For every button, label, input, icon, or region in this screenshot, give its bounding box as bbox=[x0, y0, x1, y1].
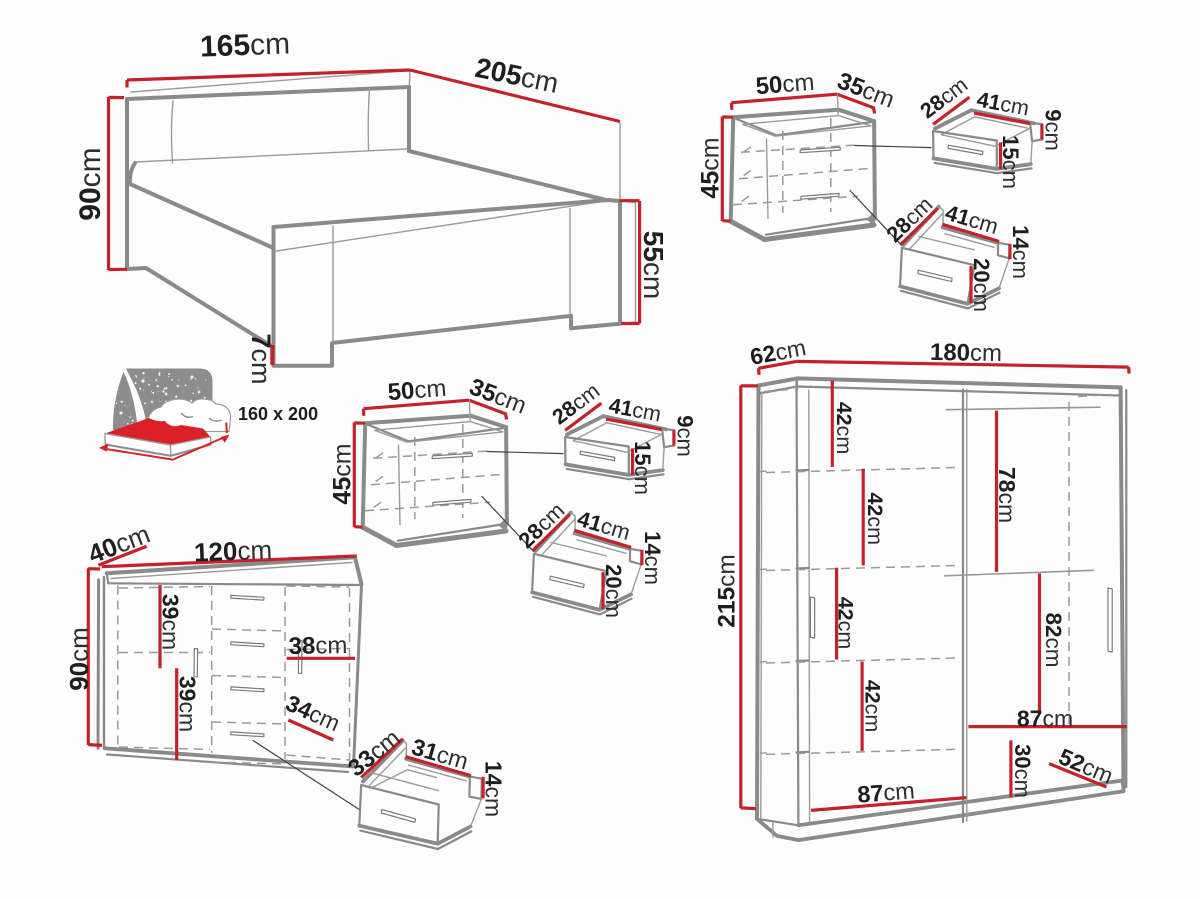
svg-text:30cm: 30cm bbox=[1011, 744, 1036, 798]
svg-text:42cm: 42cm bbox=[863, 492, 887, 545]
svg-text:42cm: 42cm bbox=[832, 402, 856, 455]
svg-text:120cm: 120cm bbox=[193, 535, 272, 568]
svg-text:38cm: 38cm bbox=[288, 631, 347, 659]
svg-text:82cm: 82cm bbox=[1042, 612, 1067, 667]
svg-text:160 x 200: 160 x 200 bbox=[238, 404, 318, 424]
svg-text:39cm: 39cm bbox=[175, 676, 201, 732]
svg-text:165cm: 165cm bbox=[199, 27, 290, 63]
svg-text:78cm: 78cm bbox=[994, 467, 1020, 523]
svg-text:7cm: 7cm bbox=[246, 333, 276, 384]
svg-text:42cm: 42cm bbox=[834, 597, 858, 650]
svg-text:180cm: 180cm bbox=[930, 338, 1003, 366]
svg-text:215cm: 215cm bbox=[713, 554, 740, 628]
svg-text:55cm: 55cm bbox=[639, 231, 670, 299]
svg-text:90cm: 90cm bbox=[74, 147, 107, 220]
svg-text:90cm: 90cm bbox=[64, 627, 94, 691]
svg-text:14cm: 14cm bbox=[481, 761, 507, 817]
svg-text:87cm: 87cm bbox=[856, 777, 915, 807]
svg-text:42cm: 42cm bbox=[861, 680, 885, 733]
svg-text:39cm: 39cm bbox=[158, 594, 184, 650]
svg-text:87cm: 87cm bbox=[1017, 706, 1073, 732]
